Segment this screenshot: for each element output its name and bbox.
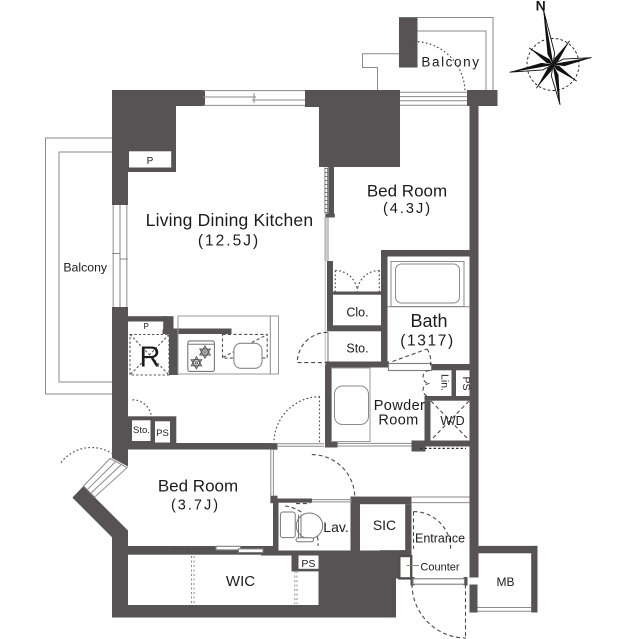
svg-text:Entrance: Entrance — [415, 532, 465, 546]
svg-text:MB: MB — [497, 575, 515, 589]
svg-text:(3.7J): (3.7J) — [171, 498, 220, 514]
svg-text:(1317): (1317) — [400, 333, 454, 350]
svg-text:Counter: Counter — [420, 562, 459, 574]
svg-text:PS: PS — [460, 376, 472, 390]
svg-text:P: P — [147, 156, 154, 167]
svg-text:Sto.: Sto. — [346, 342, 368, 356]
svg-text:Clo.: Clo. — [346, 306, 368, 320]
svg-text:W/D: W/D — [440, 414, 464, 428]
svg-text:Lin.: Lin. — [439, 374, 451, 391]
svg-text:Bed Room: Bed Room — [158, 477, 238, 496]
svg-text:(12.5J): (12.5J) — [198, 233, 260, 250]
svg-text:Balcony: Balcony — [63, 261, 108, 275]
svg-text:Bath: Bath — [410, 311, 447, 331]
svg-text:R: R — [140, 342, 161, 374]
svg-text:PS: PS — [301, 558, 315, 570]
svg-text:Room: Room — [378, 413, 418, 429]
svg-text:P: P — [144, 322, 149, 331]
svg-text:Bed Room: Bed Room — [367, 182, 447, 201]
svg-text:Lav.: Lav. — [323, 519, 348, 535]
svg-text:WIC: WIC — [226, 573, 255, 590]
svg-text:Sto.: Sto. — [133, 425, 150, 436]
svg-text:SIC: SIC — [373, 517, 396, 533]
svg-text:Living Dining Kitchen: Living Dining Kitchen — [146, 210, 314, 230]
svg-text:PS: PS — [156, 428, 169, 439]
svg-text:(4.3J): (4.3J) — [383, 201, 432, 217]
